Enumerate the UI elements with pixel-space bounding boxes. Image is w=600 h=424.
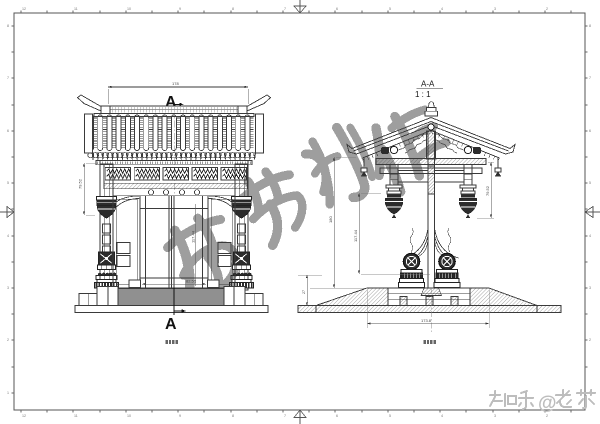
svg-text:180: 180	[328, 216, 333, 223]
svg-text:178: 178	[172, 81, 179, 86]
svg-text:82.56: 82.56	[186, 279, 197, 284]
svg-text:5: 5	[589, 181, 591, 185]
svg-text:A-A: A-A	[421, 80, 435, 89]
svg-text:1: 1	[7, 391, 9, 395]
svg-text:27: 27	[302, 290, 306, 294]
svg-text:4: 4	[441, 7, 443, 11]
svg-text:A: A	[165, 316, 177, 333]
svg-text:11: 11	[74, 414, 78, 418]
svg-text:3: 3	[589, 286, 591, 290]
svg-text:7: 7	[284, 414, 286, 418]
svg-text:6: 6	[589, 129, 591, 133]
svg-text:6: 6	[336, 414, 338, 418]
svg-text:6: 6	[7, 129, 9, 133]
svg-text:3: 3	[494, 7, 496, 11]
svg-text:4: 4	[589, 234, 591, 238]
svg-text:2: 2	[7, 338, 9, 342]
svg-text:2: 2	[589, 338, 591, 342]
svg-text:11: 11	[74, 7, 78, 11]
svg-text:8: 8	[7, 24, 9, 28]
svg-text:3: 3	[494, 414, 496, 418]
svg-text:5: 5	[389, 7, 391, 11]
svg-text:12: 12	[22, 414, 26, 418]
svg-text:4: 4	[441, 414, 443, 418]
svg-text:10: 10	[127, 7, 131, 11]
svg-text:173.8: 173.8	[421, 318, 432, 323]
svg-text:5: 5	[389, 414, 391, 418]
svg-text:9: 9	[179, 414, 181, 418]
svg-text:117.44: 117.44	[191, 230, 196, 243]
svg-text:6: 6	[336, 7, 338, 11]
svg-text:8: 8	[232, 414, 234, 418]
svg-text:117.44: 117.44	[353, 229, 358, 242]
svg-text:2: 2	[546, 414, 548, 418]
svg-text:7: 7	[7, 76, 9, 80]
svg-text:5: 5	[7, 181, 9, 185]
svg-text:4: 4	[7, 234, 9, 238]
svg-text:3: 3	[7, 286, 9, 290]
svg-text:12: 12	[22, 7, 26, 11]
svg-text:79.52: 79.52	[485, 185, 490, 196]
svg-text:8: 8	[232, 7, 234, 11]
svg-text:79.52: 79.52	[78, 178, 83, 189]
svg-text:10: 10	[127, 414, 131, 418]
svg-text:9: 9	[179, 7, 181, 11]
svg-text:@: @	[538, 393, 557, 414]
svg-text:7: 7	[589, 76, 591, 80]
svg-text:1 : 1: 1 : 1	[415, 90, 431, 99]
svg-text:7: 7	[284, 7, 286, 11]
svg-text:2: 2	[546, 7, 548, 11]
svg-text:8: 8	[589, 24, 591, 28]
